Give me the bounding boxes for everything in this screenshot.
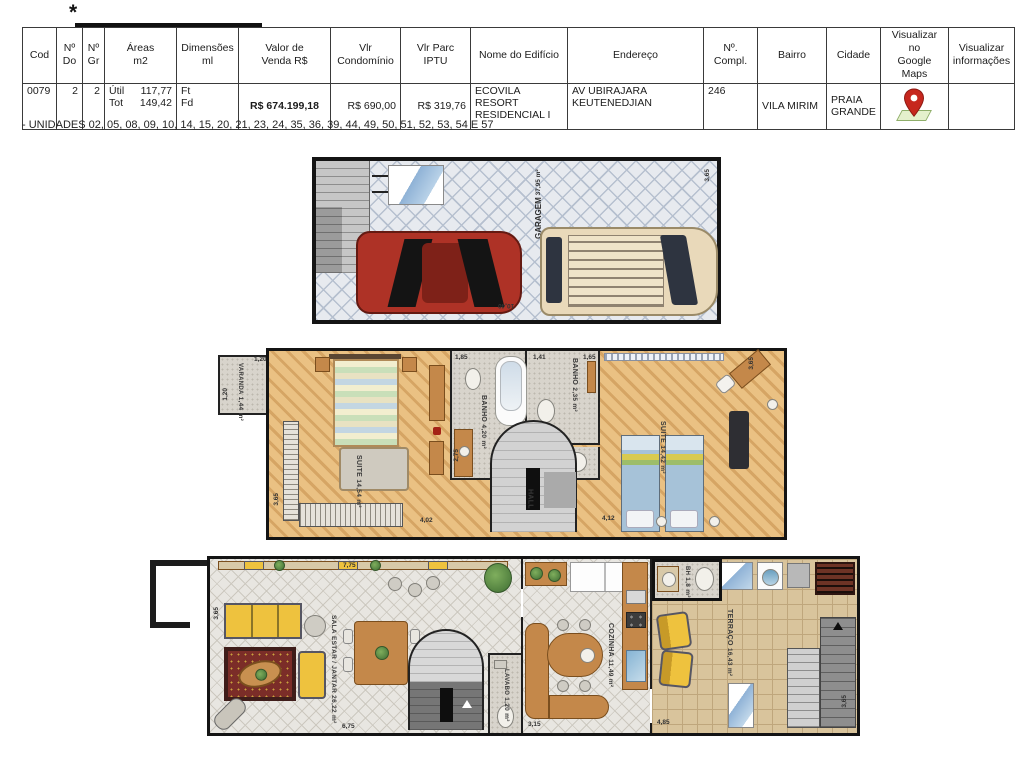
upper-staircase xyxy=(490,420,577,532)
suite2-label: SUITE 14,42 m² xyxy=(657,421,667,474)
terraco-stair-dark xyxy=(820,617,856,728)
terraco-dim-b: 3,65 xyxy=(841,695,849,708)
sala-chair-1 xyxy=(343,629,353,644)
sala-stool-3 xyxy=(426,576,440,590)
suite2-bed-right-pillow xyxy=(670,510,698,528)
cozinha-island-sink xyxy=(580,648,595,663)
garage-room-area: 37,95 m² xyxy=(535,169,542,195)
bh-sink xyxy=(662,572,676,587)
suite2-bed-left xyxy=(621,435,660,532)
sala-dim-top: 7,75 xyxy=(343,562,356,569)
lavabo-label: LAVABO 1,20 m² xyxy=(501,669,510,722)
banho2-room-area: 2,35 m² xyxy=(571,387,578,412)
lavabo-room-name: LAVABO xyxy=(503,669,509,695)
cozinha-stool-2 xyxy=(579,619,591,631)
sala-stool-1 xyxy=(388,577,402,591)
ground-staircase xyxy=(408,629,484,730)
area-tot: Tot149,42 xyxy=(109,97,172,109)
banho1-bathtub-inner xyxy=(500,361,522,411)
sala-shelf-plant-2 xyxy=(370,560,381,571)
sala-shelf-plant-1 xyxy=(274,560,285,571)
cozinha-fridge-divider xyxy=(604,563,606,591)
bh-room-name: BH xyxy=(684,566,690,575)
ground-floor-body: SALA ESTAR / JANTAR 26,22 m² 7,75 3,65 6… xyxy=(207,556,860,736)
cozinha-stool-4 xyxy=(579,680,591,692)
garage-dim-bottom: 10,40 xyxy=(498,302,514,309)
suite1-foot-bench xyxy=(339,447,409,491)
upper-floor-plan: VARANDA 1,44 m² 1,20 1,20 SUITE 14,54 m² xyxy=(218,348,787,540)
suite2-decor-round xyxy=(767,399,778,410)
suite2-closet-hangers xyxy=(604,353,724,361)
banho1-label: BANHO 4,20 m² xyxy=(478,395,488,449)
cozinha-plant-2 xyxy=(548,569,561,582)
map-pin-glyph xyxy=(902,88,926,118)
garage-entrance-glass-panel xyxy=(388,165,444,205)
cozinha-counter-bottom xyxy=(549,695,609,719)
hall-room-name: HALL xyxy=(526,489,533,509)
varanda-room: VARANDA 1,44 m² xyxy=(218,355,268,415)
varanda-room-area: 1,44 m² xyxy=(237,397,244,422)
terraco-dim-a: 4,85 xyxy=(657,719,670,726)
sala-room-name-1: SALA xyxy=(330,615,337,634)
google-maps-pin-icon[interactable] xyxy=(897,88,931,122)
terraco-cabinet xyxy=(787,563,810,588)
sala-dim-bottom: 6,75 xyxy=(342,723,355,730)
banho1-bathtub xyxy=(495,356,527,426)
sala-sofa xyxy=(224,603,302,639)
cozinha-room: COZINHA 11,49 m² 3,15 xyxy=(523,559,650,733)
asterisk-marker: * xyxy=(69,1,77,25)
suite1-label: SUITE 14,54 m² xyxy=(353,455,363,508)
area-tot-label: Tot xyxy=(109,97,123,109)
cozinha-stool-3 xyxy=(557,680,569,692)
table-header-row: Cod Nº Do Nº Gr Áreas m2 Dimensões ml Va… xyxy=(23,28,1015,84)
suite1-nightstand-right xyxy=(402,357,417,372)
cozinha-label: COZINHA 11,49 m² xyxy=(605,623,615,687)
listing-table: Cod Nº Do Nº Gr Áreas m2 Dimensões ml Va… xyxy=(22,27,1015,130)
suv-rear-window xyxy=(546,237,562,303)
cozinha-plant-1 xyxy=(530,567,543,580)
exterior-wall-top xyxy=(150,560,208,566)
area-tot-value: 149,42 xyxy=(140,97,172,109)
suite2-bed-right-stripe2 xyxy=(666,460,703,465)
suite1-room-name: SUITE xyxy=(355,455,362,477)
sala-side-table xyxy=(304,615,326,637)
suite1-wardrobe-bottom xyxy=(299,503,403,527)
washing-machine-drum xyxy=(762,569,779,586)
suv-car xyxy=(540,227,718,316)
header-endereco: Endereço xyxy=(568,28,704,84)
ground-floor-plan: SALA ESTAR / JANTAR 26,22 m² 7,75 3,65 6… xyxy=(148,555,862,737)
header-google-maps: Visualizar no Google Maps xyxy=(880,28,948,84)
suite1-dim-side: 3,65 xyxy=(273,493,281,506)
header-info: Visualizar informações xyxy=(948,28,1014,84)
sala-chair-2 xyxy=(343,657,353,672)
varanda-dim-side: 1,20 xyxy=(222,388,230,401)
terraco-glass-panel xyxy=(728,683,754,728)
sala-armchair xyxy=(298,651,326,699)
terraco-room-name: TERRAÇO xyxy=(726,609,733,646)
listing-page: * Cod Nº Do Nº Gr Áreas m2 Dimensões ml … xyxy=(0,0,1024,768)
sala-plant xyxy=(484,563,512,593)
bh-toilet xyxy=(695,567,714,591)
cozinha-stove xyxy=(626,612,646,628)
cell-bairro: VILA MIRIM xyxy=(758,83,827,129)
suite2-bed-left-stripe2 xyxy=(622,460,659,465)
sala-room-name-2: ESTAR / JANTAR xyxy=(330,636,337,693)
garage-floor-plan: GARAGEM 37,95 m² 3,65 10,40 xyxy=(312,157,721,324)
suite2-bed-left-head xyxy=(622,436,659,450)
suite2-dim-side: 3,65 xyxy=(748,357,756,370)
barbecue-grill xyxy=(815,562,855,595)
cell-info[interactable] xyxy=(948,83,1014,129)
banho2-dim-b: 1,65 xyxy=(583,354,596,361)
lavabo-room-area: 1,20 m² xyxy=(503,697,510,722)
header-bairro: Bairro xyxy=(758,28,827,84)
cozinha-island xyxy=(547,633,603,677)
cozinha-stool-1 xyxy=(557,619,569,631)
suite2-bed-right xyxy=(665,435,704,532)
banho1-room-name: BANHO xyxy=(480,395,487,422)
lavabo-sink xyxy=(494,660,507,669)
suv-roof-rack xyxy=(568,235,664,307)
sala-label: SALA ESTAR / JANTAR 26,22 m² xyxy=(328,615,337,724)
exterior-wall-bottom xyxy=(150,622,190,628)
sala-dining-plant xyxy=(375,646,389,660)
cell-cidade: PRAIA GRANDE xyxy=(827,83,881,129)
header-edificio: Nome do Edifício xyxy=(471,28,568,84)
sala-rug xyxy=(224,647,296,701)
suite2-room-area: 14,42 m² xyxy=(659,445,666,473)
terraco-table xyxy=(718,562,753,590)
sala-dining-table xyxy=(354,621,408,685)
staircase-up-arrow xyxy=(462,700,472,708)
cell-google-maps[interactable] xyxy=(880,83,948,129)
area-util: Útil117,77 xyxy=(109,85,172,97)
cozinha-room-area: 11,49 m² xyxy=(607,659,614,687)
bh-room-area: 1,8 m² xyxy=(684,577,691,598)
area-util-value: 117,77 xyxy=(141,85,172,97)
sala-shelf-decor-3 xyxy=(428,561,448,570)
units-footnote: - UNIDADES 02, 05, 08, 09, 10, 14, 15, 2… xyxy=(22,119,494,131)
suite2-bed-left-pillow xyxy=(626,510,654,528)
ground-staircase-entry xyxy=(440,688,453,722)
varanda-label: VARANDA 1,44 m² xyxy=(235,363,244,421)
hall-label: HALL xyxy=(525,489,534,509)
cozinha-sink xyxy=(626,590,646,604)
suite1-dim-bottom: 4,02 xyxy=(420,517,433,524)
bh-room: BH 1,8 m² xyxy=(652,559,722,601)
terraco-room-area: 16,43 m² xyxy=(726,648,733,676)
cozinha-herb-shelf xyxy=(525,562,567,586)
dim-fd: Fd xyxy=(181,97,234,109)
banho1-dim-top: 1,85 xyxy=(455,354,468,361)
varanda-room-name: VARANDA xyxy=(237,363,243,395)
sala-dim-side: 3,65 xyxy=(213,607,221,620)
garage-dim-right: 3,65 xyxy=(704,169,712,182)
banho2-dim-a: 1,41 xyxy=(533,354,546,361)
cell-compl: 246 xyxy=(704,83,758,129)
sala-coffee-table xyxy=(236,656,285,692)
varanda-dim-top: 1,20 xyxy=(254,356,267,363)
garage-staircase-lower-flight xyxy=(316,207,342,273)
cozinha-counter-left xyxy=(525,623,549,719)
sala-stool-2 xyxy=(408,583,422,597)
suite2-side-table-2 xyxy=(709,516,720,527)
terraco-lounger-1 xyxy=(656,611,693,651)
cozinha-room-name: COZINHA xyxy=(607,623,614,657)
cell-endereco: AV UBIRAJARA KEUTENEDJIAN xyxy=(568,83,704,129)
header-no-do: Nº Do xyxy=(57,28,83,84)
suite1-dresser xyxy=(429,365,445,421)
suite1-nightstand-left xyxy=(315,357,330,372)
suite1-wardrobe-left xyxy=(283,421,299,521)
exterior-wall-left xyxy=(150,560,156,628)
header-iptu: Vlr Parc IPTU xyxy=(401,28,471,84)
suite2-tv-panel xyxy=(729,411,749,469)
area-util-label: Útil xyxy=(109,85,124,97)
sala-shelf-decor-1 xyxy=(244,561,264,570)
banho2-toilet xyxy=(537,399,555,423)
bh-label: BH 1,8 m² xyxy=(682,566,691,598)
bh-vanity xyxy=(657,566,679,592)
banho1-toilet xyxy=(465,368,481,390)
terraco-lounger-2 xyxy=(658,649,694,688)
suite1-bed xyxy=(333,359,399,447)
terraco-stair-arrow xyxy=(833,622,843,630)
header-valor-venda: Valor de Venda R$ xyxy=(239,28,331,84)
upper-floor-body: SUITE 14,54 m² 3,65 4,02 BANHO 4,20 m² 1… xyxy=(266,348,787,540)
sala-room-area: 26,22 m² xyxy=(330,695,337,723)
banho2-room-name: BANHO xyxy=(571,358,578,385)
cozinha-dim-bottom: 3,15 xyxy=(528,721,541,728)
header-condominio: Vlr Condomínio xyxy=(331,28,401,84)
banho1-dim-side: 2,75 xyxy=(453,449,461,462)
banho2-label: BANHO 2,35 m² xyxy=(569,358,579,412)
banho2-shelf xyxy=(587,361,596,393)
banho1-room-area: 4,20 m² xyxy=(480,424,487,449)
suite1-room-area: 14,54 m² xyxy=(355,479,362,507)
upper-staircase-landing xyxy=(544,472,576,508)
suite2-side-table-1 xyxy=(656,516,667,527)
washing-machine xyxy=(757,562,783,590)
sala-coffee-table-plant xyxy=(254,667,269,682)
suite2-dim-bottom: 4,12 xyxy=(602,515,615,522)
suite1-decor-red xyxy=(433,427,441,435)
header-no-gr: Nº Gr xyxy=(83,28,105,84)
cozinha-glass-panel xyxy=(626,650,646,682)
dim-ft: Ft xyxy=(181,85,234,97)
suite2-room-name: SUITE xyxy=(659,421,666,443)
suite2-bed-right-head xyxy=(666,436,703,450)
lavabo-room: LAVABO 1,20 m² xyxy=(488,653,521,733)
terraco-label: TERRAÇO 16,43 m² xyxy=(724,609,734,676)
suite1-cabinet xyxy=(429,441,444,475)
header-areas: Áreas m2 xyxy=(105,28,177,84)
terraco-stair-light xyxy=(787,648,820,728)
suv-windshield xyxy=(660,235,698,305)
header-dimensoes: Dimensões ml xyxy=(177,28,239,84)
header-compl: Nº. Compl. xyxy=(704,28,758,84)
cozinha-counter-right xyxy=(622,562,648,690)
header-cod: Cod xyxy=(23,28,57,84)
header-cidade: Cidade xyxy=(827,28,881,84)
